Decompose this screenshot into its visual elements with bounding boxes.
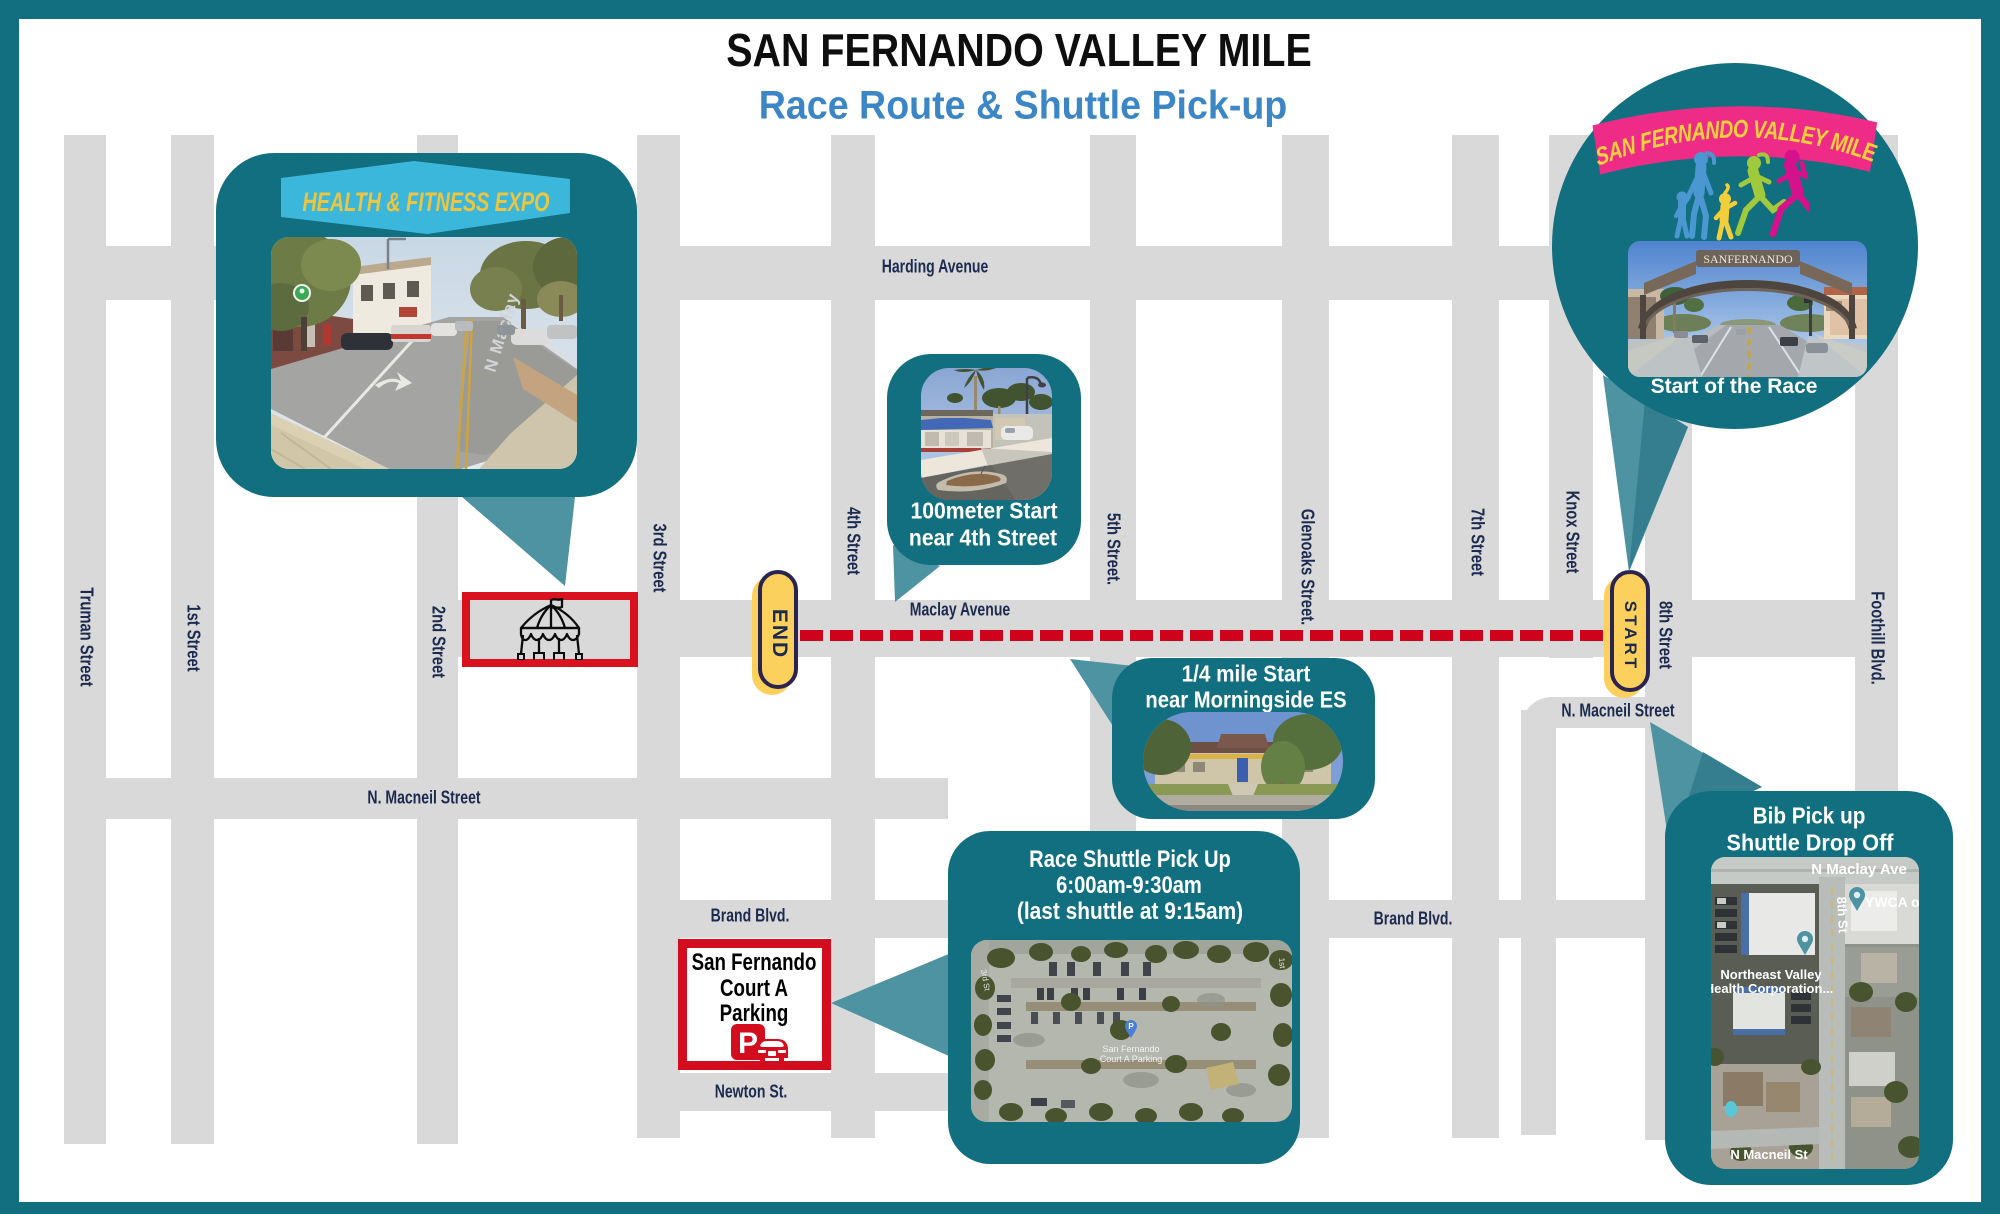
svg-text:YWCA of: YWCA of xyxy=(1865,894,1919,910)
svg-text:Northeast Valley: Northeast Valley xyxy=(1720,967,1822,982)
svg-text:8th St: 8th St xyxy=(1834,896,1851,934)
svg-text:P: P xyxy=(1128,1022,1134,1031)
svg-text:Court A Parking: Court A Parking xyxy=(1100,1054,1163,1064)
svg-text:N Maclay Ave: N Maclay Ave xyxy=(1811,861,1907,878)
svg-text:Health Corporation...: Health Corporation... xyxy=(1711,981,1833,996)
svg-text:San Fernando: San Fernando xyxy=(1102,1044,1159,1054)
svg-text:N Macneil St: N Macneil St xyxy=(1730,1147,1808,1162)
svg-text:SANFERNANDO: SANFERNANDO xyxy=(1703,252,1793,266)
svg-text:HEALTH & FITNESS EXPO: HEALTH & FITNESS EXPO xyxy=(303,188,550,218)
svg-text:1st: 1st xyxy=(1277,957,1287,969)
